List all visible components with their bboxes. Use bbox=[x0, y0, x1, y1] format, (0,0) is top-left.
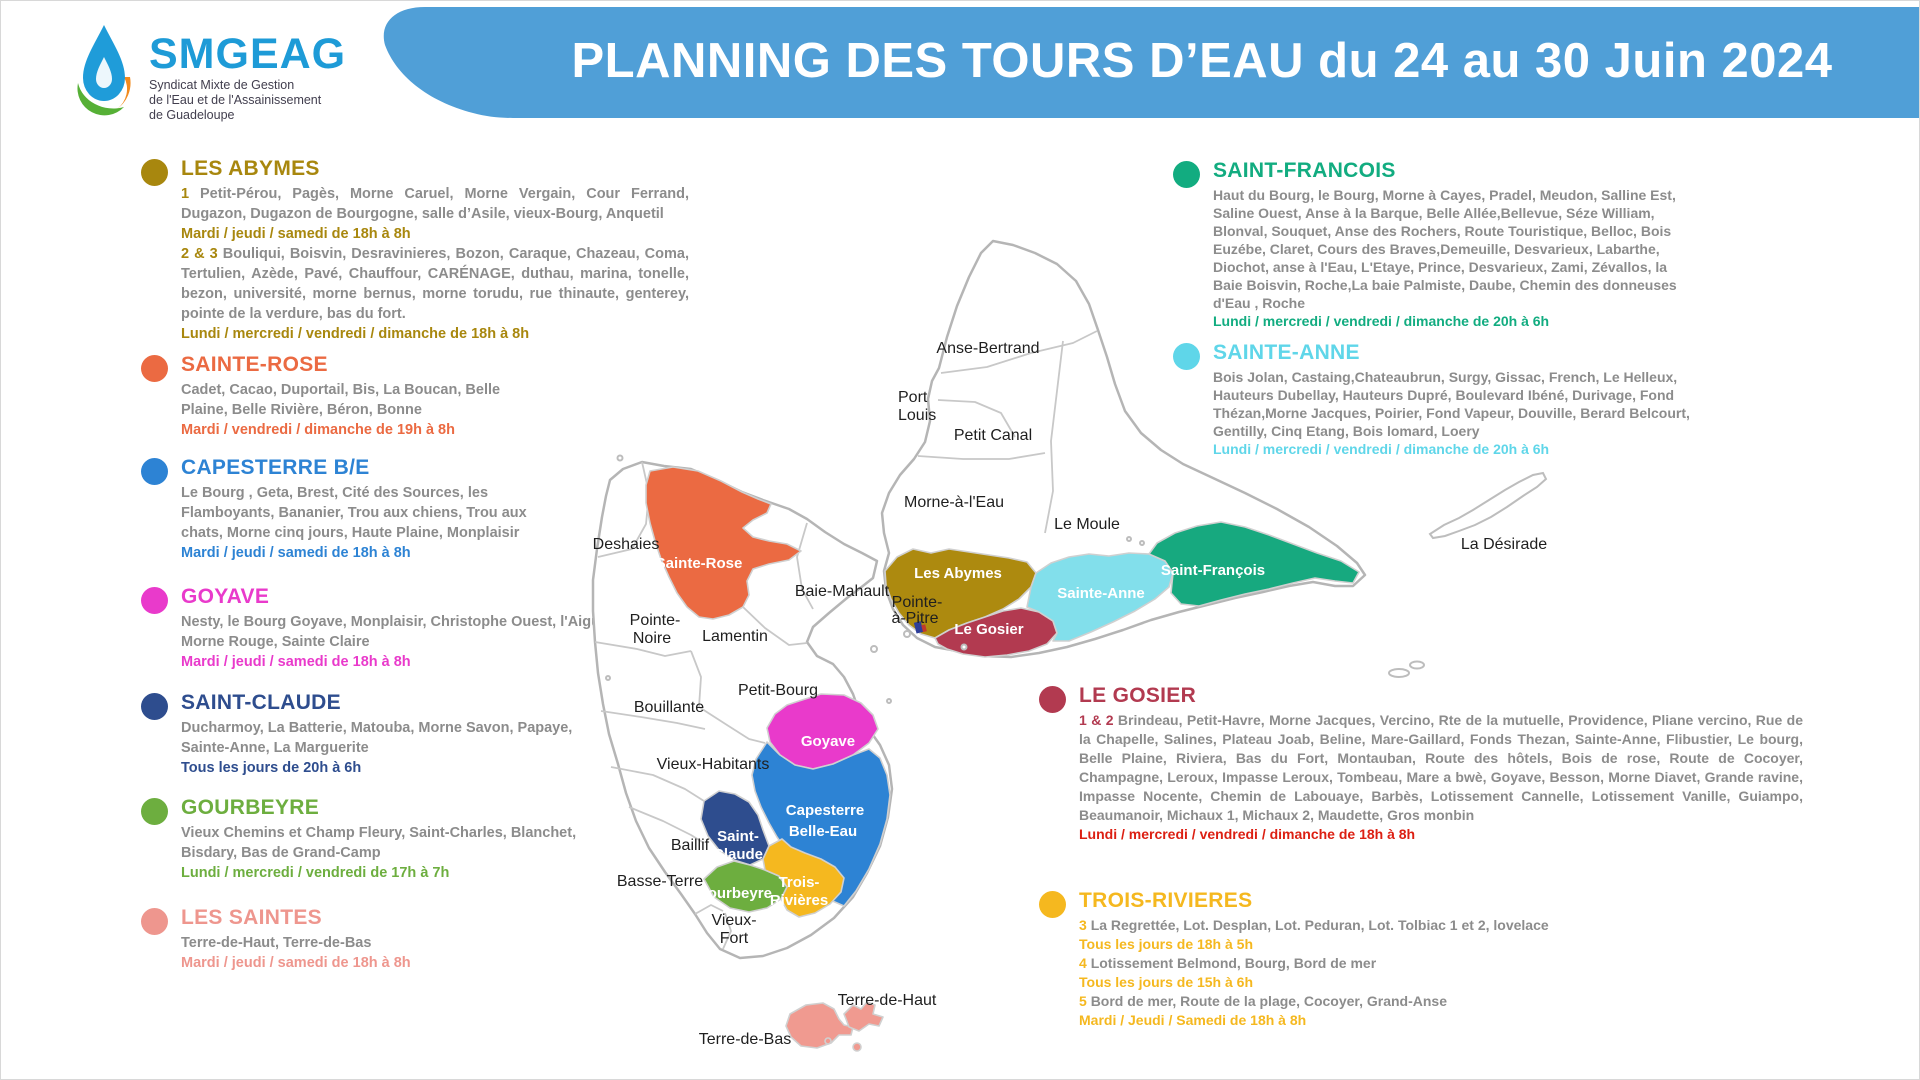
map-label-le-moule: Le Moule bbox=[1054, 516, 1120, 533]
islet bbox=[904, 631, 910, 637]
islet bbox=[871, 646, 877, 652]
region-label-trois-rivieres: Trois- bbox=[779, 874, 820, 891]
region-label-goyave: Goyave bbox=[801, 733, 855, 750]
map-label-port-louis: Louis bbox=[898, 407, 936, 424]
island-petite-terre bbox=[1389, 669, 1409, 677]
islet bbox=[887, 699, 891, 703]
map-label-anse-bertrand: Anse-Bertrand bbox=[936, 340, 1039, 357]
map-label-vieux-fort: Vieux- bbox=[711, 912, 756, 929]
map-label-baillif: Baillif bbox=[671, 837, 710, 854]
region-label-saint-claude: Claude bbox=[713, 846, 763, 863]
islet bbox=[962, 645, 967, 650]
color-dot bbox=[141, 355, 168, 382]
map-label-pointe-a-pitre: à-Pitre bbox=[891, 610, 938, 627]
zone-number: 2 & 3 bbox=[181, 246, 223, 262]
brand-name: SMGEAG bbox=[149, 33, 346, 75]
map-label-port-louis: Port bbox=[898, 389, 928, 406]
region-label-trois-rivieres: Rivières bbox=[770, 892, 828, 909]
section-title: SAINT-FRANCOIS bbox=[1213, 159, 1685, 183]
color-dot bbox=[141, 159, 168, 186]
zone-number: 1 bbox=[181, 186, 200, 202]
color-dot bbox=[141, 798, 168, 825]
map-label-pointe-a-pitre: Pointe- bbox=[892, 594, 943, 611]
map-label-pointe-noire: Noire bbox=[633, 630, 671, 647]
brand-subtitle-line: de Guadeloupe bbox=[149, 108, 346, 123]
map-label-baie-mahault: Baie-Mahault bbox=[795, 583, 890, 600]
islet bbox=[606, 676, 610, 680]
water-drop-icon bbox=[71, 23, 137, 119]
island-terre-de-bas bbox=[786, 1003, 853, 1048]
color-dot bbox=[141, 693, 168, 720]
region-label-sainte-rose: Sainte-Rose bbox=[656, 555, 743, 572]
map-label-lamentin: Lamentin bbox=[702, 628, 768, 645]
map-label-petit-bourg: Petit-Bourg bbox=[738, 682, 818, 699]
map-label-morne-a-leau: Morne-à-l'Eau bbox=[904, 494, 1004, 511]
guadeloupe-map: Anse-Bertrand Port Louis Petit Canal Mor… bbox=[471, 231, 1691, 1080]
map-label-deshaies: Deshaies bbox=[593, 536, 660, 553]
region-label-capesterre: Capesterre bbox=[786, 802, 864, 819]
map-label-vieux-fort: Fort bbox=[720, 930, 749, 947]
region-label-gourbeyre: Gourbeyre bbox=[696, 885, 772, 902]
brand-subtitle-line: de l'Eau et de l'Assainissement bbox=[149, 93, 346, 108]
island-petite-terre bbox=[1410, 662, 1424, 669]
brand-subtitle-line: Syndicat Mixte de Gestion bbox=[149, 78, 346, 93]
map-label-terre-de-bas: Terre-de-Bas bbox=[699, 1031, 791, 1048]
map-label-petit-canal: Petit Canal bbox=[954, 427, 1032, 444]
title-banner: PLANNING DES TOURS D’EAU du 24 au 30 Jui… bbox=[341, 5, 1920, 119]
region-label-le-gosier: Le Gosier bbox=[954, 621, 1023, 638]
island-saintes-islet bbox=[825, 1038, 831, 1044]
planning-poster: PLANNING DES TOURS D’EAU du 24 au 30 Jui… bbox=[0, 0, 1920, 1080]
brand-subtitle: Syndicat Mixte de Gestion de l'Eau et de… bbox=[149, 78, 346, 123]
map-label-la-desirade: La Désirade bbox=[1461, 536, 1547, 553]
islet bbox=[618, 456, 623, 461]
islet bbox=[1127, 537, 1131, 541]
page-title: PLANNING DES TOURS D’EAU du 24 au 30 Jui… bbox=[491, 5, 1913, 117]
region-label-saint-claude: Saint- bbox=[717, 828, 759, 845]
map-label-pointe-noire: Pointe- bbox=[630, 612, 681, 629]
color-dot bbox=[1173, 161, 1200, 188]
region-label-capesterre: Belle-Eau bbox=[789, 823, 857, 840]
section-title: LES ABYMES bbox=[181, 157, 689, 181]
region-label-sainte-anne: Sainte-Anne bbox=[1057, 585, 1145, 602]
region-label-saint-francois: Saint-François bbox=[1161, 562, 1265, 579]
smgeag-logo: SMGEAG Syndicat Mixte de Gestion de l'Ea… bbox=[71, 23, 346, 123]
island-saintes-islet bbox=[853, 1043, 861, 1051]
region-label-les-abymes: Les Abymes bbox=[914, 565, 1002, 582]
map-label-vieux-habitants: Vieux-Habitants bbox=[657, 756, 770, 773]
map-label-basse-terre: Basse-Terre bbox=[617, 873, 703, 890]
map-label-terre-de-haut: Terre-de-Haut bbox=[838, 992, 937, 1009]
islet bbox=[1140, 541, 1144, 545]
color-dot bbox=[141, 458, 168, 485]
map-label-bouillante: Bouillante bbox=[634, 699, 704, 716]
color-dot bbox=[141, 908, 168, 935]
areas-line: 1 Petit-Pérou, Pagès, Morne Caruel, Morn… bbox=[181, 184, 689, 224]
color-dot bbox=[141, 587, 168, 614]
island-la-desirade bbox=[1430, 473, 1546, 538]
